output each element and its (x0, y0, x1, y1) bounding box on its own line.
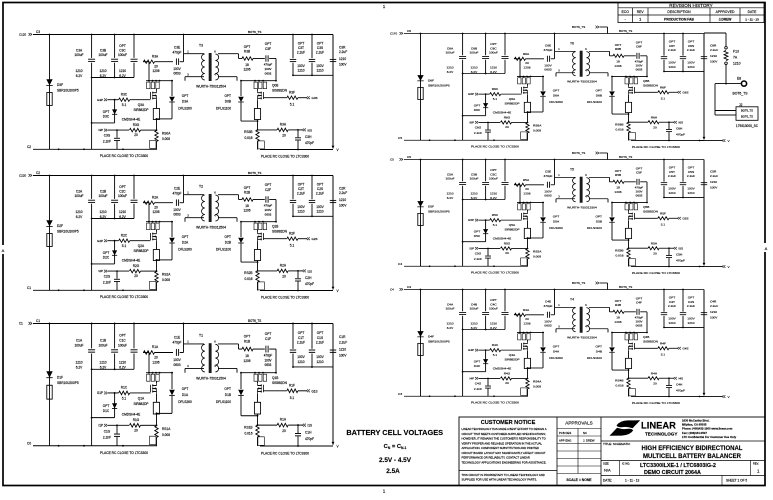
svg-text:20: 20 (282, 429, 286, 433)
svg-text:I5S: I5S (679, 247, 684, 251)
svg-text:Q4B: Q4B (643, 335, 649, 339)
svg-text:1206: 1206 (152, 360, 159, 364)
svg-text:2.2nF: 2.2nF (103, 280, 111, 284)
svg-text:1206: 1206 (523, 192, 530, 196)
svg-text:100V: 100V (264, 67, 271, 71)
svg-text:C1H: C1H (305, 431, 312, 435)
svg-text:C3R: C3R (339, 45, 346, 49)
svg-text:OPT: OPT (688, 166, 695, 170)
svg-text:T6: T6 (570, 42, 574, 46)
svg-text:SiS892DN: SiS892DN (643, 339, 658, 343)
svg-text:HOWEVER, IT REMAINS THE CUSTOM: HOWEVER, IT REMAINS THE CUSTOMER'S RESPO… (462, 437, 546, 441)
svg-text:OPT: OPT (244, 186, 251, 190)
svg-text:C5B: C5B (471, 172, 477, 176)
svg-text:18: 18 (245, 63, 249, 67)
svg-text:100uF: 100uF (98, 343, 107, 347)
svg-text:1210: 1210 (687, 321, 694, 325)
svg-text:OPT: OPT (553, 215, 560, 219)
svg-text:I6P: I6P (470, 121, 475, 125)
svg-text:WURTH-750312504: WURTH-750312504 (196, 84, 226, 88)
svg-text:OPT: OPT (636, 167, 643, 171)
svg-text:OPT: OPT (615, 169, 622, 173)
svg-text:1210: 1210 (446, 191, 453, 195)
svg-text:TITLE: SCHEMATIC: TITLE: SCHEMATIC (603, 442, 631, 446)
svg-text:I6S: I6S (679, 121, 684, 125)
svg-text:DATE: DATE (748, 10, 758, 14)
svg-text:1206: 1206 (523, 66, 530, 70)
svg-text:PLACE RC CLOSE TO LTC3300: PLACE RC CLOSE TO LTC3300 (261, 296, 309, 300)
svg-text:0.008: 0.008 (162, 433, 170, 437)
svg-text:100V: 100V (668, 317, 676, 321)
svg-text:D5C: D5C (474, 234, 481, 238)
svg-text:I2P: I2P (98, 269, 103, 273)
svg-text:2.2uF: 2.2uF (339, 340, 347, 344)
svg-text:OPT: OPT (490, 298, 497, 302)
svg-text:OPT: OPT (317, 331, 324, 335)
svg-text:OPT: OPT (317, 41, 324, 45)
svg-text:BOT6_TS: BOT6_TS (619, 285, 632, 289)
svg-text:20: 20 (282, 134, 286, 138)
svg-text:G5S: G5S (683, 217, 689, 221)
svg-text:SHEET 1 OF 5: SHEET 1 OF 5 (726, 479, 747, 483)
svg-text:OPT: OPT (553, 89, 560, 93)
svg-text:I5P: I5P (470, 247, 475, 251)
svg-text:470pF: 470pF (172, 50, 181, 54)
svg-text:100V: 100V (173, 358, 181, 362)
svg-text:NC: NC (583, 431, 587, 435)
svg-text:R4B: R4B (615, 303, 621, 307)
svg-text:2.2uF: 2.2uF (297, 192, 305, 196)
svg-text:R5B: R5B (615, 173, 621, 177)
svg-text:OPT: OPT (669, 40, 676, 44)
svg-text:R4H: R4H (651, 371, 657, 375)
svg-text:470pF: 470pF (676, 389, 685, 393)
svg-text:C3T: C3T (298, 46, 304, 50)
svg-text:IC NO.: IC NO. (622, 462, 630, 466)
svg-text:THIS CIRCUIT IS PROPRIETARY TO: THIS CIRCUIT IS PROPRIETARY TO LINEAR TE… (462, 473, 545, 477)
svg-text:100V: 100V (668, 61, 676, 65)
svg-text:C6G: C6G (475, 126, 482, 130)
svg-text:D6A: D6A (553, 94, 560, 98)
svg-text:C3: C3 (36, 30, 40, 34)
svg-text:C1R: C1R (339, 335, 346, 339)
svg-text:SIR882DP: SIR882DP (504, 228, 519, 232)
svg-text:20: 20 (505, 251, 509, 255)
svg-text:C5R: C5R (710, 169, 717, 173)
svg-text:BOT6_TS: BOT6_TS (248, 319, 261, 323)
svg-text:1206: 1206 (523, 322, 530, 326)
svg-text:5.1: 5.1 (122, 244, 127, 248)
svg-text:18: 18 (616, 316, 620, 320)
svg-text:1210: 1210 (75, 210, 82, 214)
svg-text:2.2uF: 2.2uF (339, 50, 347, 54)
svg-text:100uF: 100uF (469, 177, 478, 181)
svg-text:C6H: C6H (676, 127, 682, 131)
svg-text:100uF: 100uF (445, 307, 454, 311)
svg-text:100uF: 100uF (489, 51, 498, 55)
svg-text:SBR10U200P5: SBR10U200P5 (57, 230, 79, 234)
svg-text:PLACE RC CLOSE TO LTC3300: PLACE RC CLOSE TO LTC3300 (100, 451, 148, 455)
svg-text:470pF: 470pF (172, 191, 181, 195)
svg-text:100V: 100V (297, 64, 305, 68)
svg-text:OPT: OPT (119, 334, 126, 338)
svg-text:100V: 100V (687, 187, 695, 191)
svg-text:100uF: 100uF (118, 343, 127, 347)
svg-text:Q0B: Q0B (272, 84, 278, 88)
svg-text:20: 20 (653, 126, 657, 130)
svg-text:2.2uF: 2.2uF (316, 192, 324, 196)
svg-text:6.2V: 6.2V (447, 196, 455, 200)
svg-text:C5F: C5F (636, 171, 642, 175)
svg-text:0603: 0603 (265, 363, 272, 367)
svg-text:5.1: 5.1 (122, 396, 127, 400)
svg-text:DFLS1100: DFLS1100 (216, 106, 231, 110)
svg-text:PLACE RC CLOSE TO LTC3300: PLACE RC CLOSE TO LTC3300 (632, 401, 680, 405)
svg-text:2.2uF: 2.2uF (668, 48, 676, 52)
svg-text:5.1: 5.1 (493, 353, 498, 357)
svg-text:0603: 0603 (636, 324, 643, 328)
svg-text:OPT: OPT (669, 166, 676, 170)
svg-text:1210: 1210 (99, 360, 106, 364)
svg-text:OPT: OPT (224, 387, 231, 391)
svg-text:C3B: C3B (100, 49, 106, 53)
svg-text:C2: C2 (27, 145, 31, 149)
svg-text:CIRCUIT THAT MEETS CUSTOMER-SU: CIRCUIT THAT MEETS CUSTOMER-SUPPLIED SPE… (462, 432, 546, 436)
svg-text:RS3B: RS3B (244, 130, 252, 134)
svg-text:1: 1 (639, 17, 641, 21)
svg-text:100V: 100V (339, 204, 347, 208)
svg-text:C2E: C2E (174, 187, 180, 191)
svg-text:1210: 1210 (316, 69, 323, 73)
svg-text:DFLS260: DFLS260 (178, 106, 192, 110)
svg-text:0.016: 0.016 (616, 128, 624, 132)
svg-text:I3P: I3P (98, 128, 103, 132)
svg-text:100V: 100V (544, 64, 552, 68)
svg-text:Fax: (408)434-0507: Fax: (408)434-0507 (682, 431, 707, 435)
svg-text:DFLS260: DFLS260 (549, 100, 563, 104)
svg-text:0.016: 0.016 (244, 432, 252, 436)
svg-text:SBR10U200P5: SBR10U200P5 (428, 84, 450, 88)
svg-text:OPT: OPT (688, 296, 695, 300)
svg-text:OPT: OPT (490, 168, 497, 172)
svg-text:5.1: 5.1 (661, 223, 666, 227)
svg-text:D5F: D5F (428, 205, 434, 209)
svg-text:2.2uF: 2.2uF (710, 48, 718, 52)
svg-text:MULTICELL BATTERY BALANCER: MULTICELL BATTERY BALANCER (643, 454, 742, 460)
svg-text:R5F: R5F (660, 211, 666, 215)
svg-text:100uF: 100uF (445, 51, 454, 55)
svg-text:470pF: 470pF (305, 437, 314, 441)
svg-text:CMDSH4-4E: CMDSH4-4E (493, 367, 511, 371)
svg-text:C5H: C5H (676, 253, 682, 257)
svg-text:1210: 1210 (446, 321, 453, 325)
svg-text:1210: 1210 (687, 65, 694, 69)
svg-text:HIGH EFFICIENCY BIDIRECTIONAL: HIGH EFFICIENCY BIDIRECTIONAL (642, 446, 743, 452)
svg-text:C1G: C1G (104, 429, 111, 433)
svg-text:2.2uF: 2.2uF (710, 304, 718, 308)
svg-text:C2S: C2S (317, 187, 323, 191)
svg-text:2.2nF: 2.2nF (103, 139, 111, 143)
svg-text:2.2nF: 2.2nF (474, 257, 482, 261)
svg-text:D6C: D6C (474, 108, 481, 112)
svg-text:C4T: C4T (669, 300, 675, 304)
svg-text:R2H: R2H (280, 264, 287, 268)
svg-text:D3A: D3A (182, 100, 189, 104)
svg-text:0603: 0603 (544, 68, 551, 72)
svg-text:-: - (625, 17, 626, 21)
svg-text:C0: C0 (27, 441, 31, 445)
svg-text:470pF: 470pF (543, 304, 552, 308)
svg-text:100uF: 100uF (489, 177, 498, 181)
svg-text:100uF: 100uF (118, 194, 127, 198)
svg-text:100V: 100V (297, 355, 305, 359)
svg-text:PRODUCTION FAB: PRODUCTION FAB (664, 17, 694, 21)
svg-text:ECO: ECO (622, 10, 630, 14)
svg-text:PCB DES: PCB DES (559, 431, 571, 435)
svg-text:CMDSH4-4E: CMDSH4-4E (493, 111, 511, 115)
svg-text:RS6A: RS6A (533, 123, 542, 127)
svg-text:SiS892DN: SiS892DN (272, 88, 288, 92)
svg-text:C4A: C4A (447, 302, 454, 306)
svg-text:TECHNOLOGY: TECHNOLOGY (645, 432, 677, 437)
svg-text:OPT: OPT (119, 44, 126, 48)
svg-text:PLACE RC CLOSE TO LTC3300: PLACE RC CLOSE TO LTC3300 (100, 154, 148, 158)
svg-text:OPT: OPT (474, 229, 481, 233)
svg-text:OPT: OPT (244, 335, 251, 339)
svg-text:179313000_SC: 179313000_SC (736, 124, 759, 128)
svg-text:LINEAR TECHNOLOGY HAS MADE A B: LINEAR TECHNOLOGY HAS MADE A BEST EFFORT… (462, 427, 547, 431)
svg-text:2.2nF: 2.2nF (474, 387, 482, 391)
svg-text:DFLS1100: DFLS1100 (216, 247, 231, 251)
svg-text:G4S: G4S (683, 347, 689, 351)
svg-text:100V: 100V (297, 205, 305, 209)
svg-text:C2B: C2B (100, 190, 106, 194)
svg-text:100uF: 100uF (98, 194, 107, 198)
svg-text:G5P: G5P (468, 218, 474, 222)
svg-text:C3G: C3G (104, 134, 111, 138)
svg-text:PLACE RC CLOSE TO LTC3300: PLACE RC CLOSE TO LTC3300 (471, 145, 519, 149)
svg-text:C3A: C3A (76, 49, 83, 53)
svg-text:DFLS260: DFLS260 (549, 226, 563, 230)
svg-text:20: 20 (154, 205, 158, 209)
svg-text:20: 20 (134, 133, 138, 137)
svg-text:1210: 1210 (668, 191, 675, 195)
svg-text:2.2uF: 2.2uF (687, 48, 695, 52)
svg-text:C4: C4 (398, 262, 402, 266)
svg-text:OPT: OPT (182, 387, 189, 391)
svg-text:R6F: R6F (660, 85, 666, 89)
svg-text:APPROVED: APPROVED (716, 10, 735, 14)
svg-text:C4: C4 (407, 285, 411, 289)
svg-text:0.016: 0.016 (616, 384, 624, 388)
svg-text:RS0A: RS0A (162, 131, 171, 135)
svg-text:5.1: 5.1 (290, 243, 295, 247)
svg-text:5.1: 5.1 (493, 223, 498, 227)
svg-text:SBR10U200P5: SBR10U200P5 (57, 381, 79, 385)
svg-text:1210: 1210 (490, 191, 497, 195)
svg-text:DEMO CIRCUIT 2064A: DEMO CIRCUIT 2064A (644, 470, 701, 476)
svg-text:A: A (765, 246, 768, 251)
svg-text:100V: 100V (265, 358, 273, 362)
svg-text:1210: 1210 (687, 191, 694, 195)
svg-text:C4F: C4F (636, 301, 642, 305)
svg-text:T1: T1 (199, 333, 203, 337)
svg-text:100uF: 100uF (489, 307, 498, 311)
svg-text:6.2V: 6.2V (447, 326, 455, 330)
svg-text:PLACE RC CLOSE TO LTC3300: PLACE RC CLOSE TO LTC3300 (471, 271, 519, 275)
svg-text:Q5A: Q5A (509, 223, 516, 227)
svg-text:J. DREW: J. DREW (583, 439, 595, 443)
svg-text:1206: 1206 (243, 68, 250, 72)
svg-text:100uF: 100uF (74, 194, 83, 198)
svg-text:2.2uF: 2.2uF (668, 304, 676, 308)
svg-text:RS6B: RS6B (615, 122, 623, 126)
svg-text:RS4A: RS4A (533, 379, 542, 383)
svg-text:C5: C5 (407, 155, 411, 159)
svg-text:D1F: D1F (57, 375, 63, 379)
svg-text:C6B: C6B (471, 46, 477, 50)
svg-text:R2F: R2F (289, 232, 295, 236)
svg-text:T4: T4 (570, 298, 574, 302)
svg-text:R3H: R3H (280, 123, 287, 127)
svg-text:C220: C220 (19, 174, 27, 178)
svg-text:0.016: 0.016 (245, 277, 253, 281)
svg-text:Q1A: Q1A (138, 397, 145, 401)
svg-text:C5A: C5A (447, 172, 454, 176)
svg-text:PLACE RC CLOSE TO LTC3300: PLACE RC CLOSE TO LTC3300 (100, 295, 148, 299)
svg-text:OPT: OPT (615, 43, 622, 47)
svg-text:C6R: C6R (710, 43, 717, 47)
svg-text:100V: 100V (668, 187, 676, 191)
svg-text:CUSTOMER NOTICE: CUSTOMER NOTICE (481, 420, 536, 426)
svg-text:1210: 1210 (490, 321, 497, 325)
svg-text:C3F: C3F (265, 47, 271, 51)
svg-text:100uF: 100uF (469, 51, 478, 55)
svg-text:CMDSH4-4E: CMDSH4-4E (493, 237, 511, 241)
svg-text:DFLS1100: DFLS1100 (587, 100, 602, 104)
svg-text:R4F: R4F (660, 341, 666, 345)
svg-text:R6B: R6B (615, 47, 621, 51)
svg-text:100V: 100V (544, 190, 552, 194)
svg-text:0.008: 0.008 (162, 278, 170, 282)
svg-text:D6F: D6F (428, 79, 434, 83)
svg-text:20: 20 (653, 252, 657, 256)
svg-text:5.1: 5.1 (661, 97, 666, 101)
svg-text:100uF: 100uF (74, 53, 83, 57)
svg-text:100uF: 100uF (74, 343, 83, 347)
svg-text:1206: 1206 (152, 69, 159, 73)
svg-text:6.2V: 6.2V (447, 70, 455, 74)
svg-text:OPT: OPT (265, 332, 272, 336)
svg-text:C6E: C6E (545, 44, 551, 48)
svg-text:OPT: OPT (636, 41, 643, 45)
svg-text:C1: C1 (36, 319, 40, 323)
svg-text:Q4A: Q4A (509, 353, 516, 357)
svg-text:1210: 1210 (339, 198, 346, 202)
svg-text:LTC Confidential For Customer: LTC Confidential For Customer Use Only (682, 435, 737, 439)
svg-text:OPT: OPT (595, 89, 602, 93)
svg-text:100V: 100V (173, 67, 181, 71)
svg-text:5.1: 5.1 (290, 102, 295, 106)
svg-text:BOT6_TS: BOT6_TS (732, 92, 748, 96)
svg-text:R3B: R3B (244, 49, 250, 53)
svg-text:R3C: R3C (121, 93, 128, 97)
svg-text:C1F: C1F (265, 337, 271, 341)
svg-text:C6C: C6C (490, 46, 497, 50)
svg-text:2.2uF: 2.2uF (687, 304, 695, 308)
svg-text:1210: 1210 (668, 65, 675, 69)
svg-text:C5S: C5S (688, 170, 694, 174)
svg-text:BOT6_TS: BOT6_TS (741, 114, 753, 118)
svg-text:G1S: G1S (312, 389, 318, 393)
svg-text:OPT: OPT (103, 110, 110, 114)
svg-text:20: 20 (154, 355, 158, 359)
svg-text:REVISION HISTORY: REVISION HISTORY (669, 3, 712, 8)
svg-text:D5A: D5A (553, 220, 560, 224)
svg-text:SIZE: SIZE (603, 462, 609, 466)
svg-text:C3C: C3C (119, 49, 126, 53)
svg-text:OPT: OPT (182, 235, 189, 239)
svg-text:C1E: C1E (174, 336, 181, 340)
svg-text:C1: C1 (27, 286, 31, 290)
svg-text:C4E: C4E (545, 300, 551, 304)
svg-text:D6B: D6B (596, 94, 602, 98)
svg-text:SCALE = NONE: SCALE = NONE (566, 478, 592, 482)
svg-text:T3: T3 (199, 44, 203, 48)
svg-text:1210: 1210 (668, 321, 675, 325)
svg-text:C2H: C2H (305, 276, 312, 280)
svg-text:G3P: G3P (97, 98, 103, 102)
svg-text:100V: 100V (710, 185, 718, 189)
svg-text:470pF: 470pF (305, 282, 314, 286)
svg-text:2.2nF: 2.2nF (103, 435, 111, 439)
svg-text:D4B: D4B (596, 350, 602, 354)
svg-text:BOT6_TS: BOT6_TS (572, 25, 585, 29)
svg-text:D4F: D4F (428, 335, 434, 339)
svg-text:OPT: OPT (224, 235, 231, 239)
svg-text:470pF: 470pF (172, 340, 181, 344)
svg-text:E8: E8 (737, 77, 741, 81)
svg-text:0603: 0603 (544, 194, 551, 198)
svg-text:100V: 100V (687, 317, 695, 321)
svg-text:C5E: C5E (545, 170, 551, 174)
svg-text:R2A: R2A (152, 196, 159, 200)
svg-text:C5C: C5C (490, 172, 497, 176)
svg-text:RS1B: RS1B (244, 426, 253, 430)
svg-text:18: 18 (616, 60, 620, 64)
svg-text:470pF: 470pF (264, 63, 273, 67)
svg-text:1210: 1210 (446, 65, 453, 69)
svg-text:1206: 1206 (614, 64, 621, 68)
svg-text:100V: 100V (339, 63, 347, 67)
svg-text:OPT: OPT (103, 404, 110, 408)
svg-text:0.016: 0.016 (245, 136, 253, 140)
svg-text:6.2V: 6.2V (76, 74, 83, 78)
svg-text:RS1A: RS1A (162, 427, 171, 431)
svg-text:R3F: R3F (289, 91, 295, 95)
svg-text:Q5B: Q5B (643, 205, 649, 209)
svg-text:470pF: 470pF (543, 48, 552, 52)
svg-text:D1B: D1B (225, 393, 232, 397)
svg-text:6.2V: 6.2V (76, 215, 83, 219)
svg-text:OPT: OPT (182, 94, 189, 98)
svg-text:Q6A: Q6A (509, 97, 516, 101)
svg-text:100V: 100V (264, 208, 271, 212)
svg-text:WURTH-750312504: WURTH-750312504 (567, 336, 597, 340)
svg-text:I2S: I2S (308, 269, 313, 273)
svg-text:PLACE RC CLOSE TO LTC3300: PLACE RC CLOSE TO LTC3300 (632, 145, 680, 149)
svg-text:J.DREW: J.DREW (719, 17, 733, 21)
